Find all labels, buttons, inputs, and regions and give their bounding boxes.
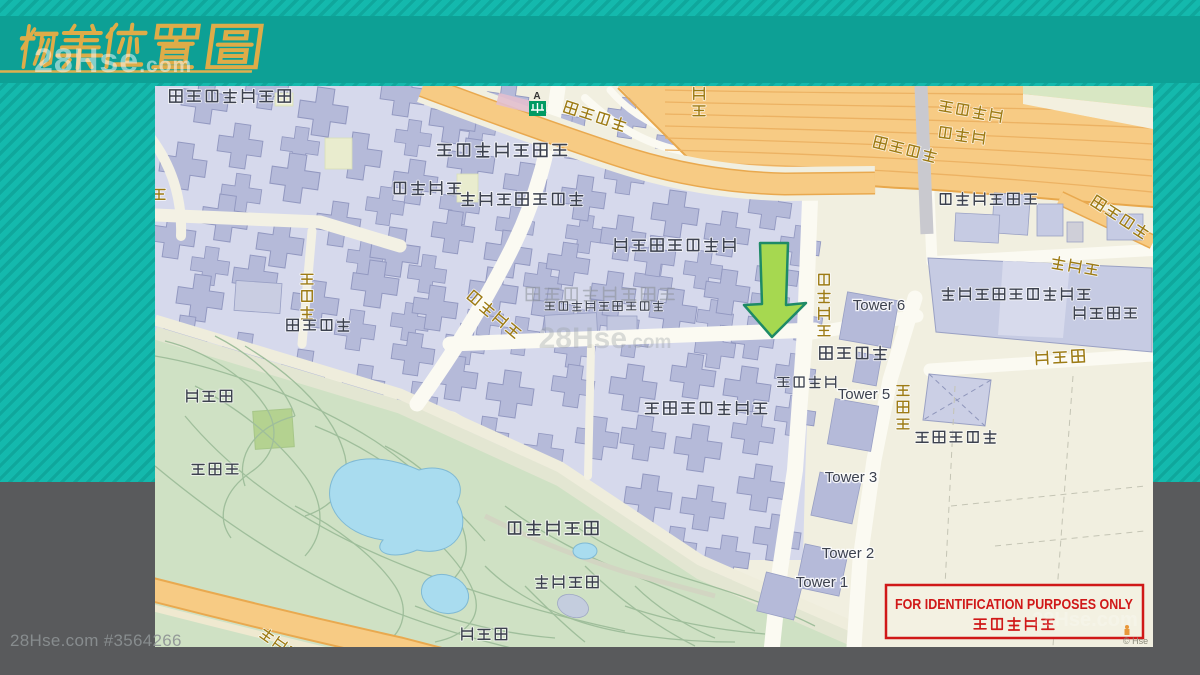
svg-text:Tower 5: Tower 5 xyxy=(838,386,891,403)
svg-text:28Hse.com: 28Hse.com xyxy=(1032,609,1138,631)
svg-text:© Hse: © Hse xyxy=(1123,636,1148,646)
svg-text:A: A xyxy=(533,91,540,102)
svg-text:Tower 1: Tower 1 xyxy=(796,574,849,591)
svg-text:Tower 3: Tower 3 xyxy=(825,469,878,486)
svg-text:Tower 2: Tower 2 xyxy=(822,545,875,562)
svg-text:Tower 6: Tower 6 xyxy=(853,297,906,314)
